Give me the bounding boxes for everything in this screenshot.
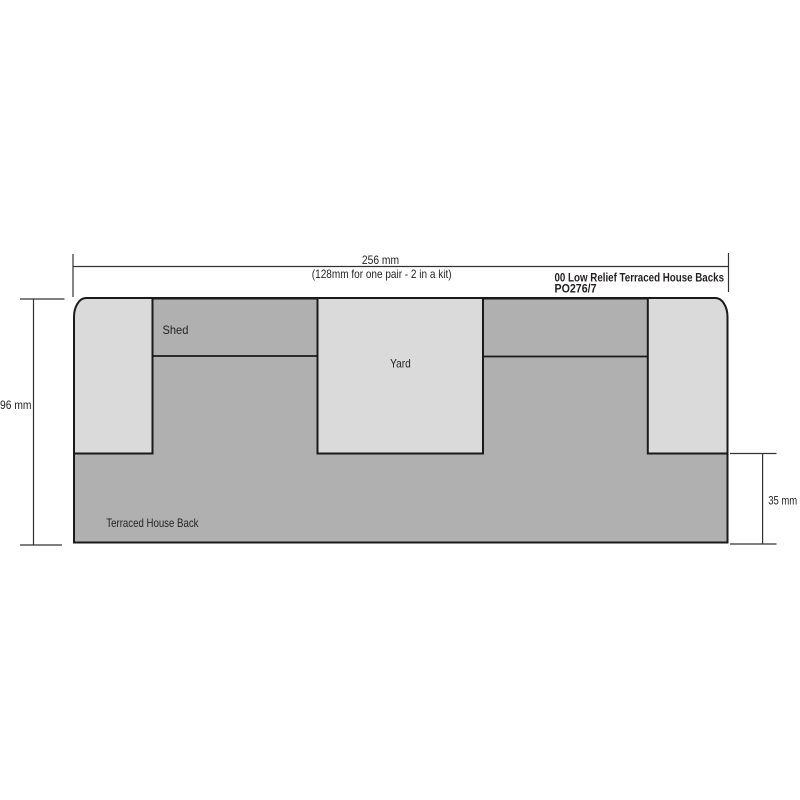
- svg-text:(128mm for one pair - 2 in a k: (128mm for one pair - 2 in a kit): [312, 267, 452, 281]
- svg-text:Shed: Shed: [163, 323, 189, 337]
- svg-text:256 mm: 256 mm: [362, 253, 399, 267]
- svg-text:Yard: Yard: [390, 357, 411, 371]
- svg-text:PO276/7: PO276/7: [555, 282, 597, 296]
- svg-text:96 mm: 96 mm: [0, 398, 32, 412]
- svg-text:Terraced House Back: Terraced House Back: [106, 516, 199, 530]
- svg-text:35 mm: 35 mm: [768, 494, 797, 508]
